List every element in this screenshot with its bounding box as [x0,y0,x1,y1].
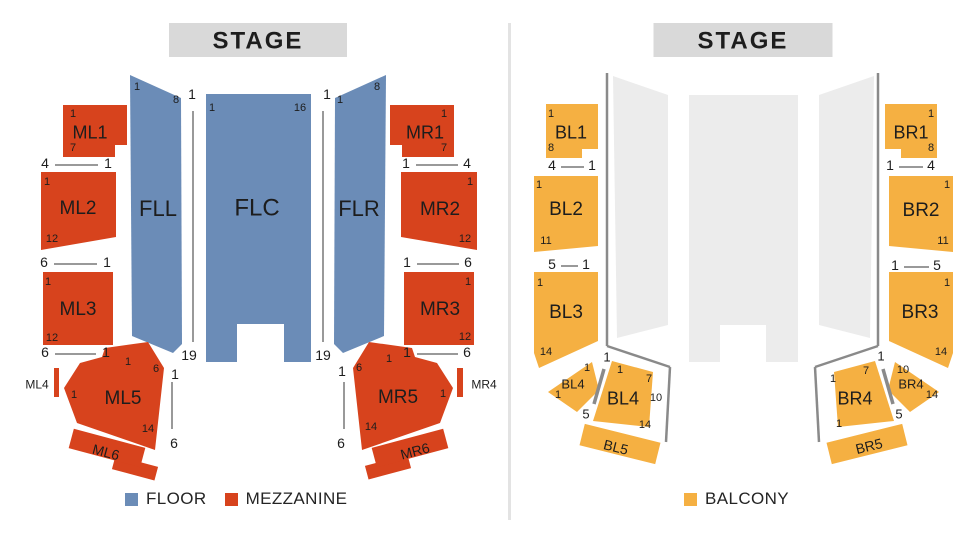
seat-number: 1 [536,179,542,191]
seat-number: 7 [646,373,652,385]
seat-number: 8 [374,81,380,93]
seat-number: 1 [584,362,590,374]
ghost-floor-right [819,76,874,338]
seat-number: 7 [441,142,447,154]
section-label-ml4: ML4 [25,377,49,391]
section-label-flc: FLC [234,195,279,222]
row-number: 1 [323,86,331,102]
section-label-mr2: MR2 [420,199,460,220]
section-label-ml5: ML5 [105,388,142,409]
section-label-ml1: ML1 [72,122,107,142]
seat-number: 16 [294,102,306,114]
row-number: 1 [103,254,111,270]
seat-number: 6 [153,363,159,375]
row-number: 5 [895,407,902,422]
row-number: 1 [403,344,411,360]
seat-number: 14 [540,346,552,358]
section-label-bl1: BL1 [555,122,587,142]
seat-number: 1 [386,353,392,365]
seat-number: 6 [356,362,362,374]
legend-item-balcony: BALCONY [684,489,789,509]
ghost-floor-center [689,95,798,362]
section-label-br3: BR3 [902,302,939,323]
row-number: 1 [877,349,884,364]
legend-floor-mezzanine: FLOOR MEZZANINE [125,489,347,509]
legend-label-balcony: BALCONY [705,489,789,509]
seat-number: 12 [459,331,471,343]
seat-map-svg: STAGESTAGEFLLFLCFLRML1ML2ML3ML4ML5ML6MR1… [0,0,980,546]
row-number: 4 [41,155,49,171]
section-label-br1: BR1 [893,122,928,142]
section-label-mr5: MR5 [378,387,418,408]
seat-number: 1 [440,388,446,400]
seat-number: 1 [944,179,950,191]
seat-number: 12 [46,332,58,344]
seat-number: 11 [937,235,948,247]
legend-label-floor: FLOOR [146,489,207,509]
seat-number: 12 [46,233,58,245]
row-number: 1 [102,344,110,360]
row-number: 1 [104,155,112,171]
seat-number: 1 [617,364,623,376]
row-number: 5 [933,257,941,273]
row-number: 1 [188,86,196,102]
row-number: 4 [548,157,556,173]
row-number: 1 [582,256,590,272]
row-number: 5 [548,256,556,272]
stage-label: STAGE [213,28,304,55]
section-ml4[interactable] [54,368,59,397]
row-number: 1 [588,157,596,173]
row-number: 4 [463,155,471,171]
seat-number: 1 [555,389,561,401]
section-label-br4-small: BR4 [898,377,923,392]
seat-number: 1 [836,418,842,430]
seat-number: 1 [537,277,543,289]
row-number: 4 [927,157,935,173]
balcony-rail [666,367,670,442]
seat-number: 1 [70,108,76,120]
seat-number: 1 [71,389,77,401]
row-number: 6 [170,435,178,451]
seat-number: 14 [365,421,377,433]
row-number: 19 [315,347,331,363]
row-number: 1 [171,366,179,382]
stage-label: STAGE [698,28,789,55]
section-label-ml3: ML3 [60,299,97,320]
row-number: 6 [41,344,49,360]
seat-number: 7 [70,142,76,154]
seat-number: 11 [540,235,551,247]
row-number: 6 [464,254,472,270]
seat-number: 1 [134,81,140,93]
row-number: 1 [886,157,894,173]
seat-number: 8 [173,94,179,106]
row-number: 1 [402,155,410,171]
seat-number: 10 [897,364,909,376]
section-mr4[interactable] [457,368,463,397]
row-number: 6 [463,344,471,360]
section-flc[interactable] [206,94,311,362]
seating-chart: STAGESTAGEFLLFLCFLRML1ML2ML3ML4ML5ML6MR1… [0,0,980,546]
section-label-mr1: MR1 [406,122,444,142]
row-number: 1 [338,363,346,379]
legend-label-mezzanine: MEZZANINE [246,489,348,509]
balcony-rail [815,367,819,442]
row-number: 5 [582,407,589,422]
seat-number: 1 [44,176,50,188]
section-label-flr: FLR [338,196,380,221]
section-label-fll: FLL [139,196,177,221]
seat-number: 1 [944,277,950,289]
ghost-floor-left [613,76,668,338]
legend-item-mezzanine: MEZZANINE [225,489,348,509]
section-label-ml2: ML2 [60,198,97,219]
seat-number: 14 [639,419,651,431]
section-label-br2: BR2 [903,200,940,221]
seat-number: 7 [863,365,869,377]
seat-number: 1 [928,108,934,120]
legend-item-floor: FLOOR [125,489,207,509]
row-number: 1 [403,254,411,270]
section-label-bl3: BL3 [549,302,583,323]
seat-number: 1 [337,94,343,106]
seat-number: 8 [548,142,554,154]
section-label-bl4-small: BL4 [561,377,584,392]
seat-number: 1 [465,276,471,288]
section-label-mr3: MR3 [420,299,460,320]
row-number: 1 [891,257,899,273]
seat-number: 1 [467,176,473,188]
mezzanine-swatch-icon [225,493,238,506]
section-label-mr4: MR4 [471,377,497,391]
section-label-bl2: BL2 [549,199,583,220]
seat-number: 14 [142,423,154,435]
seat-number: 8 [928,142,934,154]
section-label-br4: BR4 [837,388,872,408]
seat-number: 1 [830,373,836,385]
seat-number: 12 [459,233,471,245]
seat-number: 14 [935,346,947,358]
seat-number: 14 [926,389,938,401]
row-number: 19 [181,347,197,363]
section-label-bl4: BL4 [607,388,639,408]
seat-number: 10 [650,392,662,404]
row-number: 6 [40,254,48,270]
floor-swatch-icon [125,493,138,506]
balcony-swatch-icon [684,493,697,506]
seat-number: 1 [45,276,51,288]
seat-number: 1 [209,102,215,114]
seat-number: 1 [125,356,131,368]
seat-number: 1 [441,108,447,120]
row-number: 1 [603,350,610,365]
legend-balcony: BALCONY [684,489,789,509]
row-number: 6 [337,435,345,451]
seat-number: 1 [548,108,554,120]
